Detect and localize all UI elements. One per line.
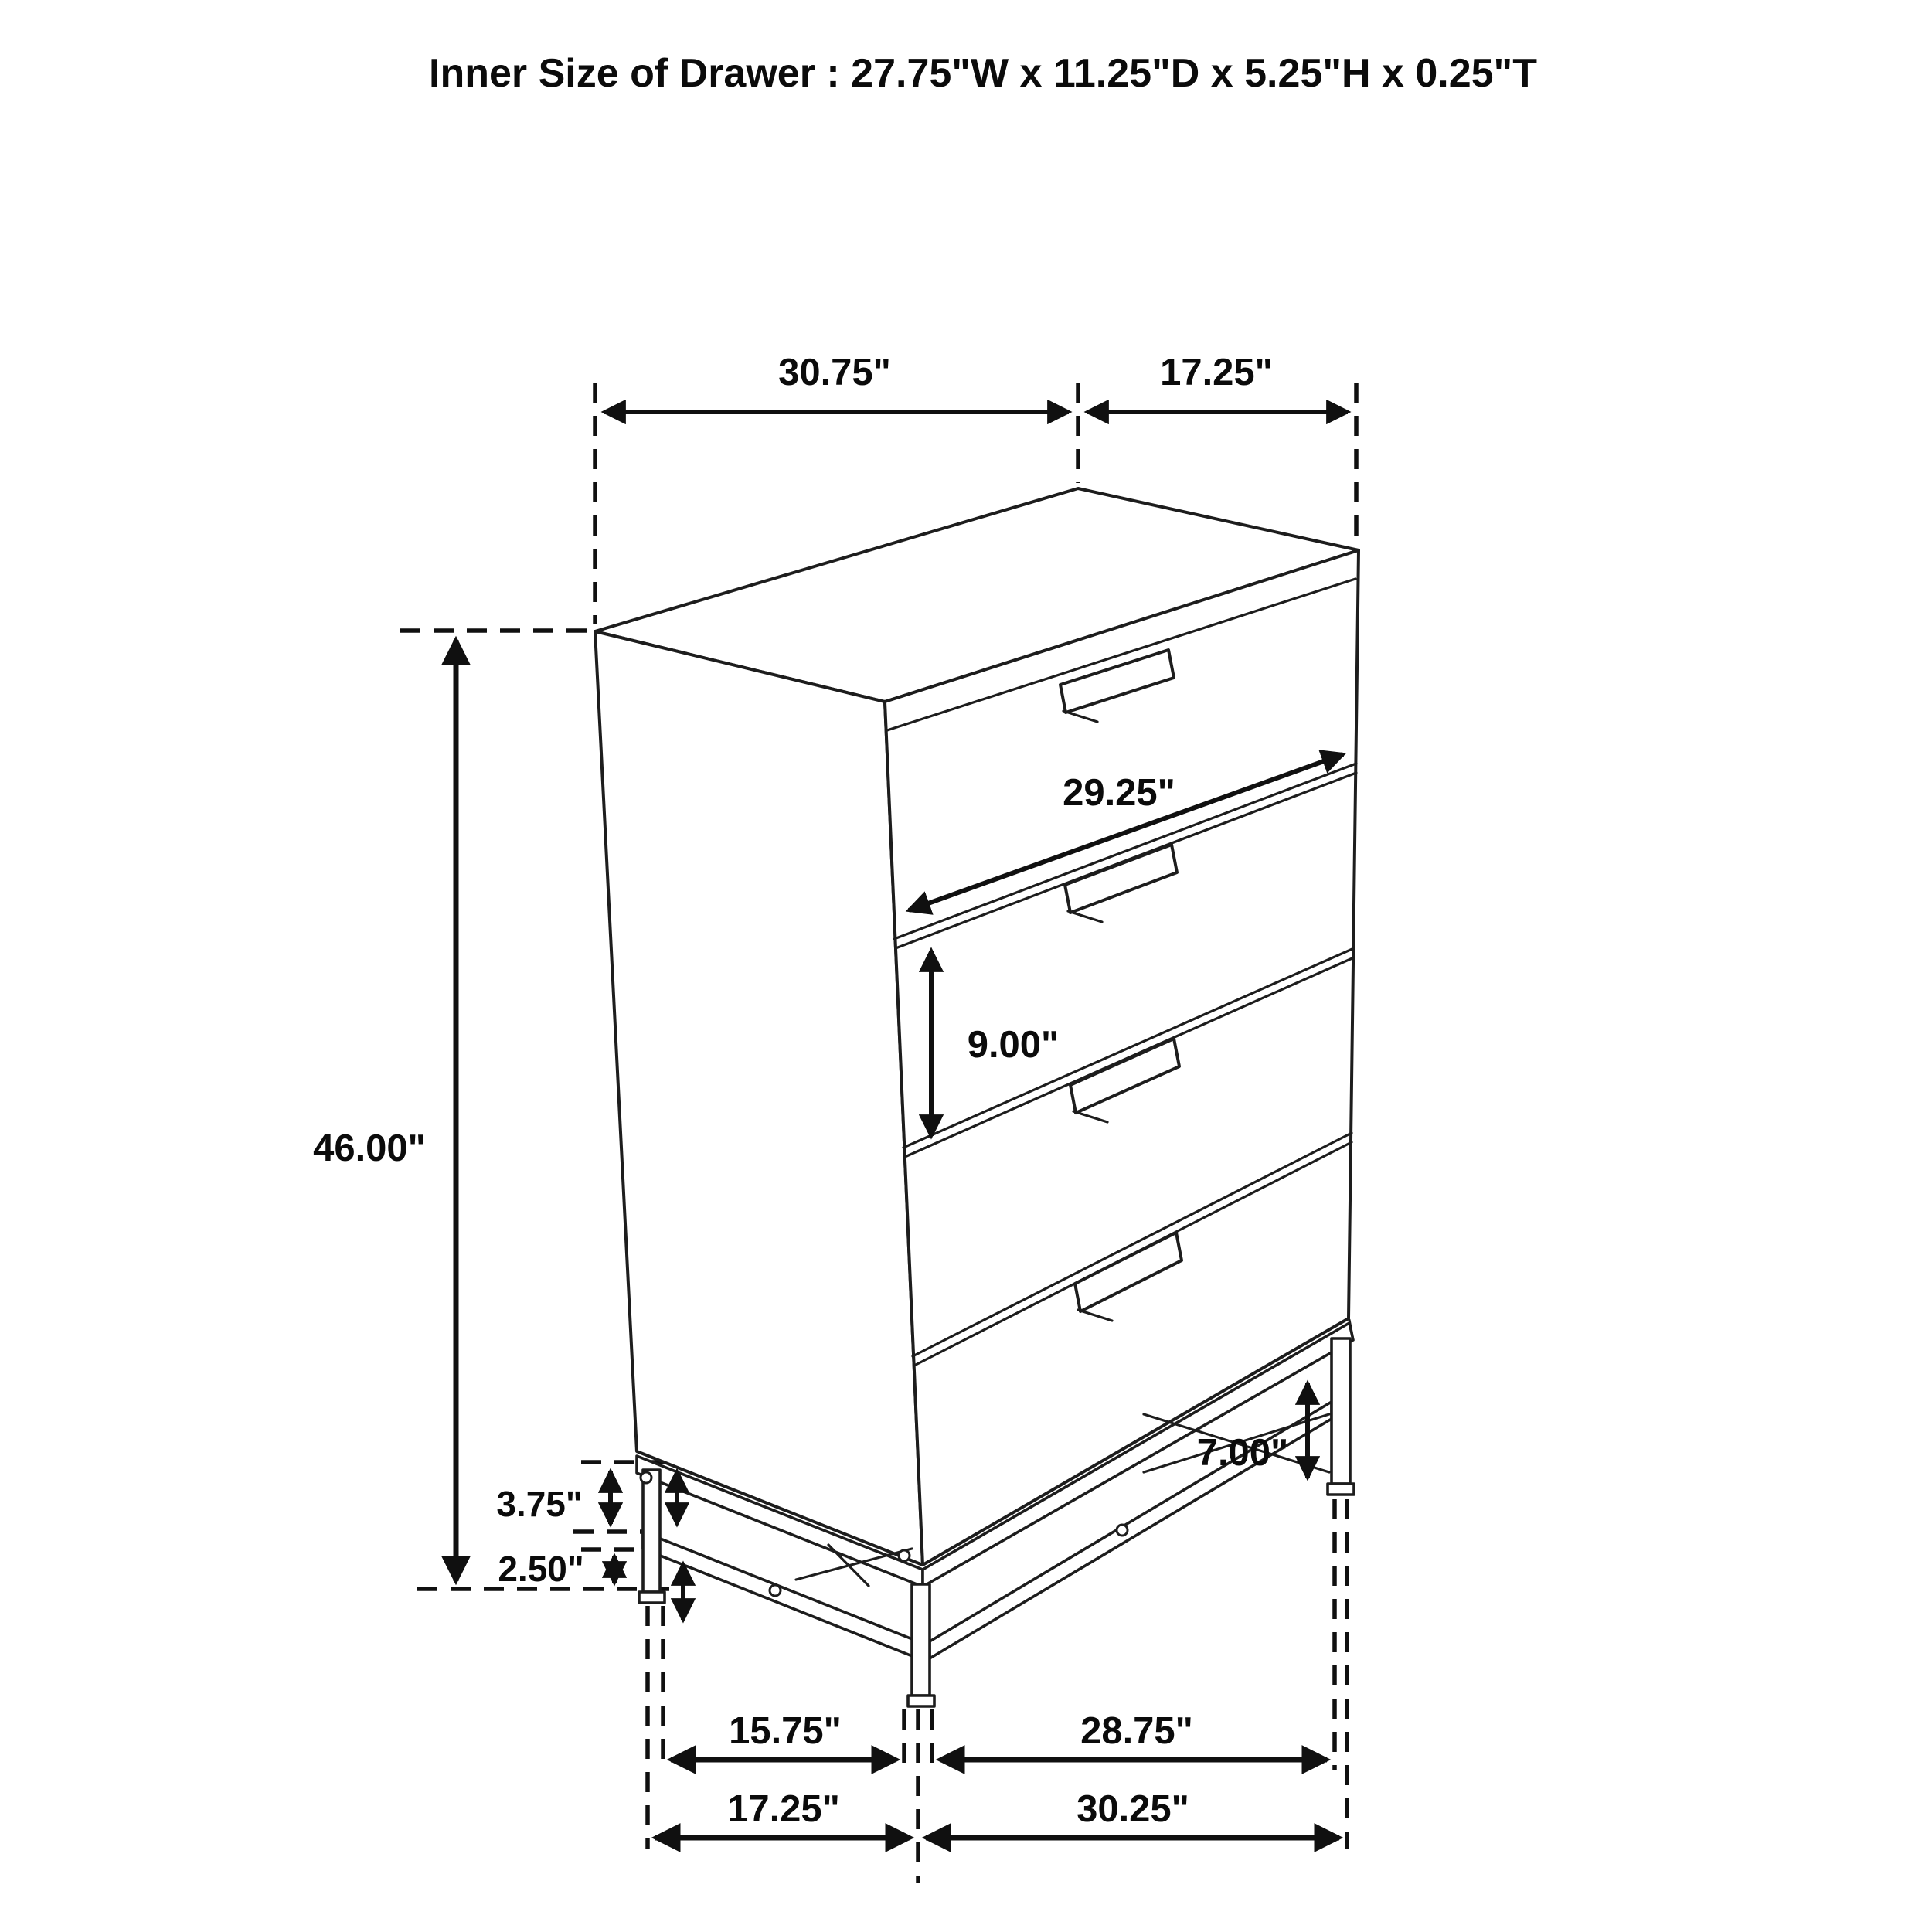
chest-dimension-diagram: Inner Size of Drawer : 27.75"W x 11.25"D… — [0, 0, 1932, 1932]
dimension-diagram-page: Inner Size of Drawer : 27.75"W x 11.25"D… — [0, 0, 1932, 1932]
top-depth-dimension: 17.25" — [1087, 352, 1348, 412]
base-right-leg — [1332, 1338, 1350, 1484]
page-title: Inner Size of Drawer : 27.75"W x 11.25"D… — [429, 51, 1537, 96]
screw-hole — [899, 1550, 910, 1561]
chest-front-face — [885, 550, 1359, 1565]
screw-hole — [770, 1585, 781, 1596]
base-left-leg-foot — [639, 1592, 665, 1603]
base-center-leg-foot — [908, 1696, 934, 1706]
floor-outer-width-label: 30.25" — [1077, 1788, 1189, 1830]
screw-hole — [641, 1472, 651, 1483]
floor-outer-depth-label: 17.25" — [727, 1788, 840, 1830]
overall-height-label: 46.00" — [313, 1128, 426, 1169]
chest-illustration — [595, 488, 1359, 1706]
leg-height-label: 7.00" — [1197, 1432, 1289, 1474]
base-lower-label: 2.50" — [498, 1549, 583, 1589]
base-center-leg — [912, 1584, 930, 1696]
floor-inner-width-dimension: 28.75" — [940, 1710, 1327, 1760]
floor-inner-depth-dimension: 15.75" — [671, 1710, 896, 1760]
top-depth-label: 17.25" — [1160, 352, 1273, 393]
chest-side-panel — [595, 631, 923, 1565]
screw-hole — [1117, 1525, 1128, 1536]
base-upper-label: 3.75" — [496, 1484, 582, 1524]
floor-outer-depth-dimension: 17.25" — [655, 1788, 910, 1838]
floor-inner-depth-label: 15.75" — [729, 1710, 842, 1752]
floor-outer-width-dimension: 30.25" — [926, 1788, 1339, 1838]
top-width-dimension: 30.75" — [604, 352, 1069, 412]
overall-height-dimension: 46.00" — [313, 640, 456, 1581]
top-width-label: 30.75" — [778, 352, 891, 393]
drawer-height-label: 9.00" — [968, 1024, 1060, 1066]
drawer-width-label: 29.25" — [1063, 772, 1175, 814]
base-left-leg — [643, 1470, 660, 1592]
base-right-leg-foot — [1328, 1484, 1354, 1495]
floor-inner-width-label: 28.75" — [1080, 1710, 1193, 1752]
